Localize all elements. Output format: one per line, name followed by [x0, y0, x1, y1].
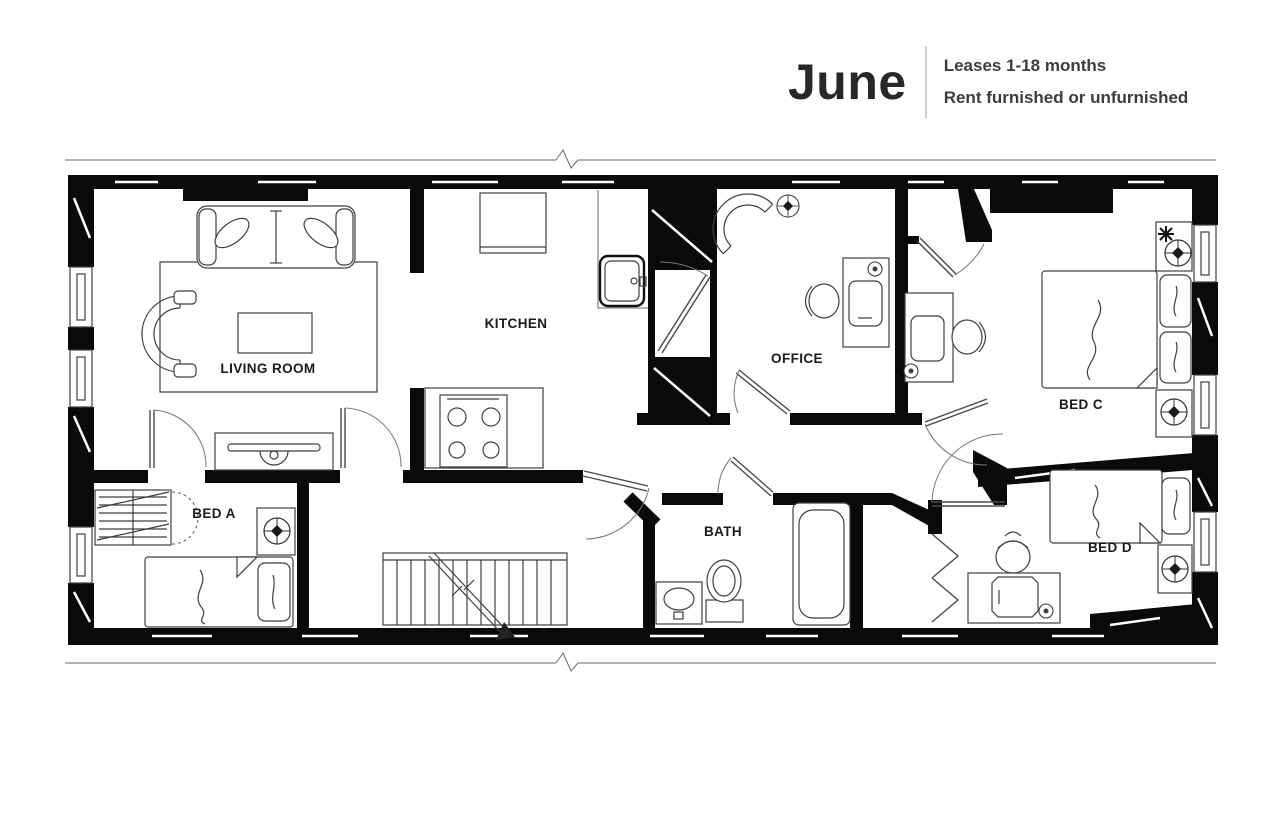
room-label-bed-c: BED C	[1059, 397, 1103, 412]
door-bath	[718, 457, 773, 496]
snowflake-icon	[1158, 226, 1174, 242]
bifold-closet-doors	[932, 534, 958, 622]
desk-lamp-icon	[868, 262, 882, 276]
desk-lamp-icon	[1039, 604, 1053, 618]
door-bed-c-top	[917, 238, 984, 277]
closet	[95, 490, 198, 545]
ceiling-light-icon	[1165, 240, 1191, 266]
window	[1190, 225, 1220, 282]
bathtub-icon	[793, 503, 850, 625]
desk-chair	[996, 532, 1030, 573]
sink-icon	[600, 256, 646, 306]
kitchen: KITCHEN	[425, 190, 648, 468]
room-label-bed-d: BED D	[1088, 540, 1132, 555]
desk-chair	[952, 320, 986, 354]
sofa	[197, 206, 355, 268]
coffee-table	[238, 313, 312, 353]
window	[66, 527, 96, 583]
door-office	[734, 370, 790, 414]
desk-lamp-icon	[904, 364, 918, 378]
room-label-bath: BATH	[704, 524, 742, 539]
desk-chair	[806, 284, 840, 318]
window	[66, 350, 96, 407]
armchair	[142, 291, 196, 377]
bed	[145, 557, 293, 627]
room-label-bed-a: BED A	[192, 506, 236, 521]
ceiling-light-icon	[1162, 556, 1188, 582]
door-living-room	[341, 408, 401, 468]
kitchen-cabinet	[480, 193, 546, 253]
ceiling-light-icon	[264, 518, 290, 544]
ceiling-light-icon	[777, 195, 799, 217]
room-label-living-room: LIVING ROOM	[220, 361, 315, 376]
office: OFFICE	[699, 180, 889, 366]
bed	[1050, 470, 1190, 543]
floor-plan: LIVING ROOM KITCHEN	[0, 0, 1280, 828]
pillow	[1160, 275, 1191, 327]
bed	[1042, 271, 1157, 388]
toilet-icon	[706, 560, 743, 622]
bath: BATH	[656, 503, 850, 625]
window	[1190, 512, 1220, 572]
window	[1190, 375, 1220, 435]
door-bed-a	[150, 410, 206, 468]
stairs	[383, 553, 567, 640]
media-console	[215, 433, 333, 470]
living-room: LIVING ROOM	[142, 206, 377, 470]
bed-c-room: BED C	[904, 222, 1192, 437]
room-label-office: OFFICE	[771, 351, 823, 366]
stove-icon	[425, 388, 543, 468]
laptop-icon	[992, 577, 1038, 617]
window	[66, 267, 96, 327]
bed-a-room: BED A	[95, 490, 295, 627]
vanity-sink-icon	[656, 582, 702, 624]
pillow	[1160, 332, 1191, 383]
ceiling-light-icon	[1161, 399, 1187, 425]
bed-d-room: BED D	[932, 470, 1192, 623]
stair-direction-arrow	[429, 553, 515, 640]
room-label-kitchen: KITCHEN	[485, 316, 548, 331]
